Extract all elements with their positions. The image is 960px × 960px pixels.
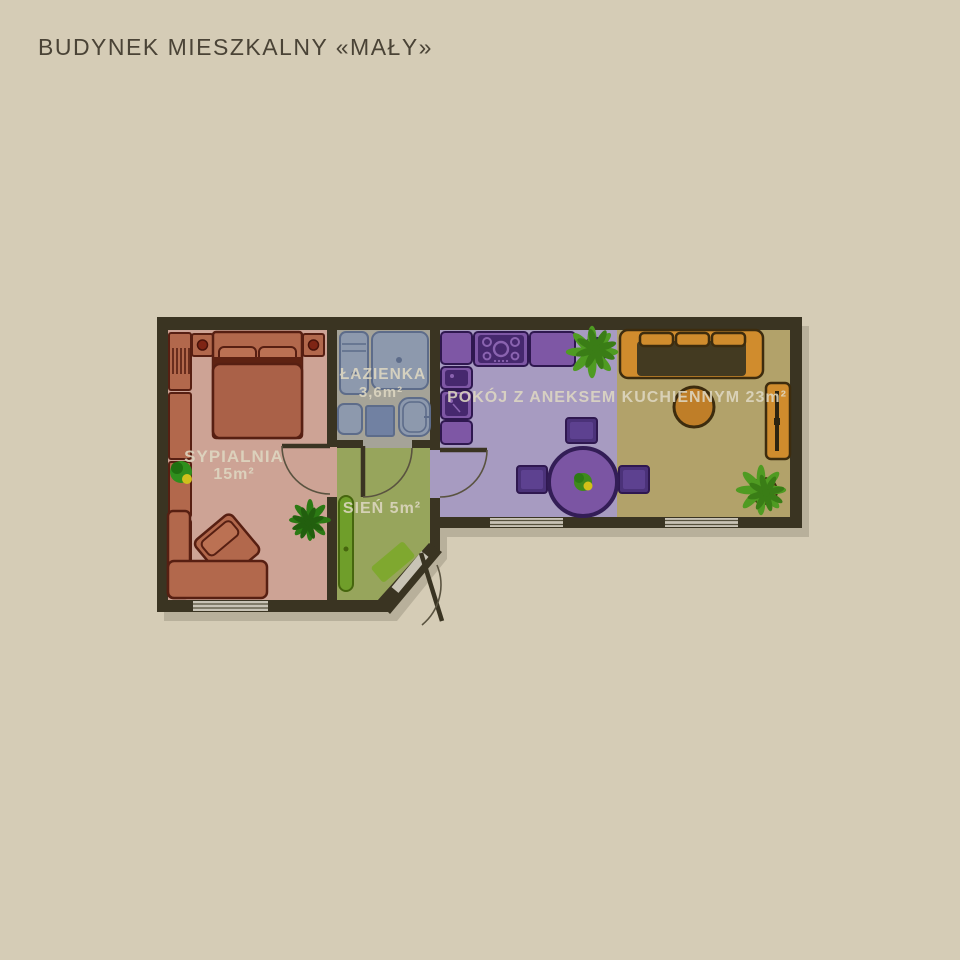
wall-right — [790, 317, 802, 528]
floor-plan-drawing: SYPIALNIA 15m² ŁAZIENKA 3,6m² — [0, 0, 960, 960]
hall-cabinet-handle — [344, 547, 349, 552]
wall-bottom-main — [430, 517, 802, 528]
lamp-left — [198, 340, 208, 350]
living-kitchen-label: POKÓJ Z ANEKSEM KUCHIENNYM 23m² — [447, 387, 787, 406]
wall-bottom-left — [157, 600, 390, 612]
livingroom-window-left — [490, 518, 563, 527]
sofa — [620, 330, 763, 378]
lamp-right — [309, 340, 319, 350]
bedroom-window — [193, 601, 268, 611]
stove — [474, 332, 528, 366]
bathroom-label: ŁAZIENKA — [340, 366, 426, 383]
bathroom-area: 3,6m² — [359, 384, 403, 401]
livingroom-window-right — [665, 518, 738, 527]
wall-top — [157, 317, 802, 330]
kitchen-counter-bottom — [441, 421, 472, 444]
wall-left — [157, 317, 168, 612]
bedroom-door-opening — [327, 447, 337, 497]
bath-mat — [338, 404, 362, 434]
kitchen-counter-top-right — [530, 332, 575, 366]
bedroom-area: 15m² — [213, 466, 254, 483]
kitchen-sink-small — [441, 367, 472, 389]
bathroom-door-opening — [363, 440, 412, 448]
washing-machine — [366, 406, 394, 436]
livingroom-door-opening — [430, 450, 440, 498]
kitchen-counter-top-left — [441, 332, 472, 364]
hall-label: SIEŃ 5m² — [343, 498, 421, 517]
bathroom-fixtures: ŁAZIENKA 3,6m² — [338, 332, 430, 436]
dining-chair-left — [517, 466, 547, 493]
toilet — [399, 398, 430, 436]
duvet — [213, 364, 302, 438]
floor-plan-canvas: BUDYNEK MIESZKALNY «MAŁY» — [0, 0, 960, 960]
dining-chair-top — [566, 418, 597, 443]
wall-hall-livingroom — [430, 330, 440, 552]
bedroom-label: SYPIALNIA — [184, 447, 284, 466]
dining-chair-right — [619, 466, 649, 493]
double-bed — [213, 332, 302, 438]
